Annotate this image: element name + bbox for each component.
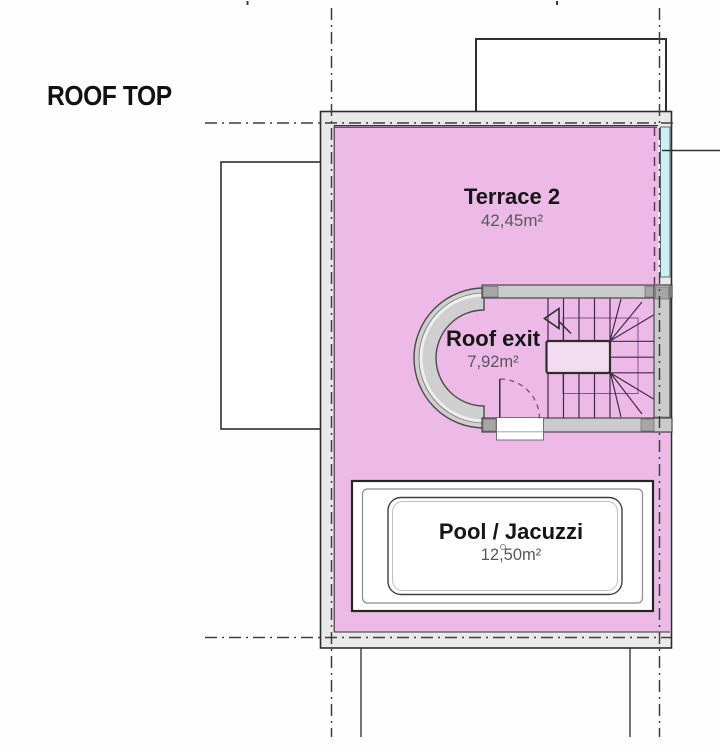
lower-level-wall-stubs (361, 649, 630, 738)
wall-cap (483, 287, 498, 298)
roof-exit-room-label: Roof exit (398, 326, 588, 352)
page-title: ROOF TOP (47, 80, 172, 112)
floorplan-drawing (0, 0, 720, 747)
stair-wall-top (482, 285, 672, 298)
stair-wall-right (654, 285, 670, 432)
wall-cap (641, 419, 654, 431)
glass-railing-strip (661, 127, 671, 277)
adjacent-roof-outline-left (221, 162, 322, 429)
door-opening (497, 418, 544, 441)
terrace-area-label: 42,45m² (412, 211, 612, 231)
wall-cap (483, 419, 496, 431)
floorplan-canvas: ROOF TOP Terrace 2 42,45m² Roof exit 7,9… (0, 0, 720, 747)
pool-area-label: 12,50m² (411, 546, 611, 565)
adjacent-roof-outline-top (476, 39, 666, 112)
wall-cap (656, 287, 669, 299)
terrace-room-label: Terrace 2 (412, 184, 612, 210)
pool-room-label: Pool / Jacuzzi (411, 519, 611, 545)
roof-exit-area-label: 7,92m² (398, 353, 588, 372)
